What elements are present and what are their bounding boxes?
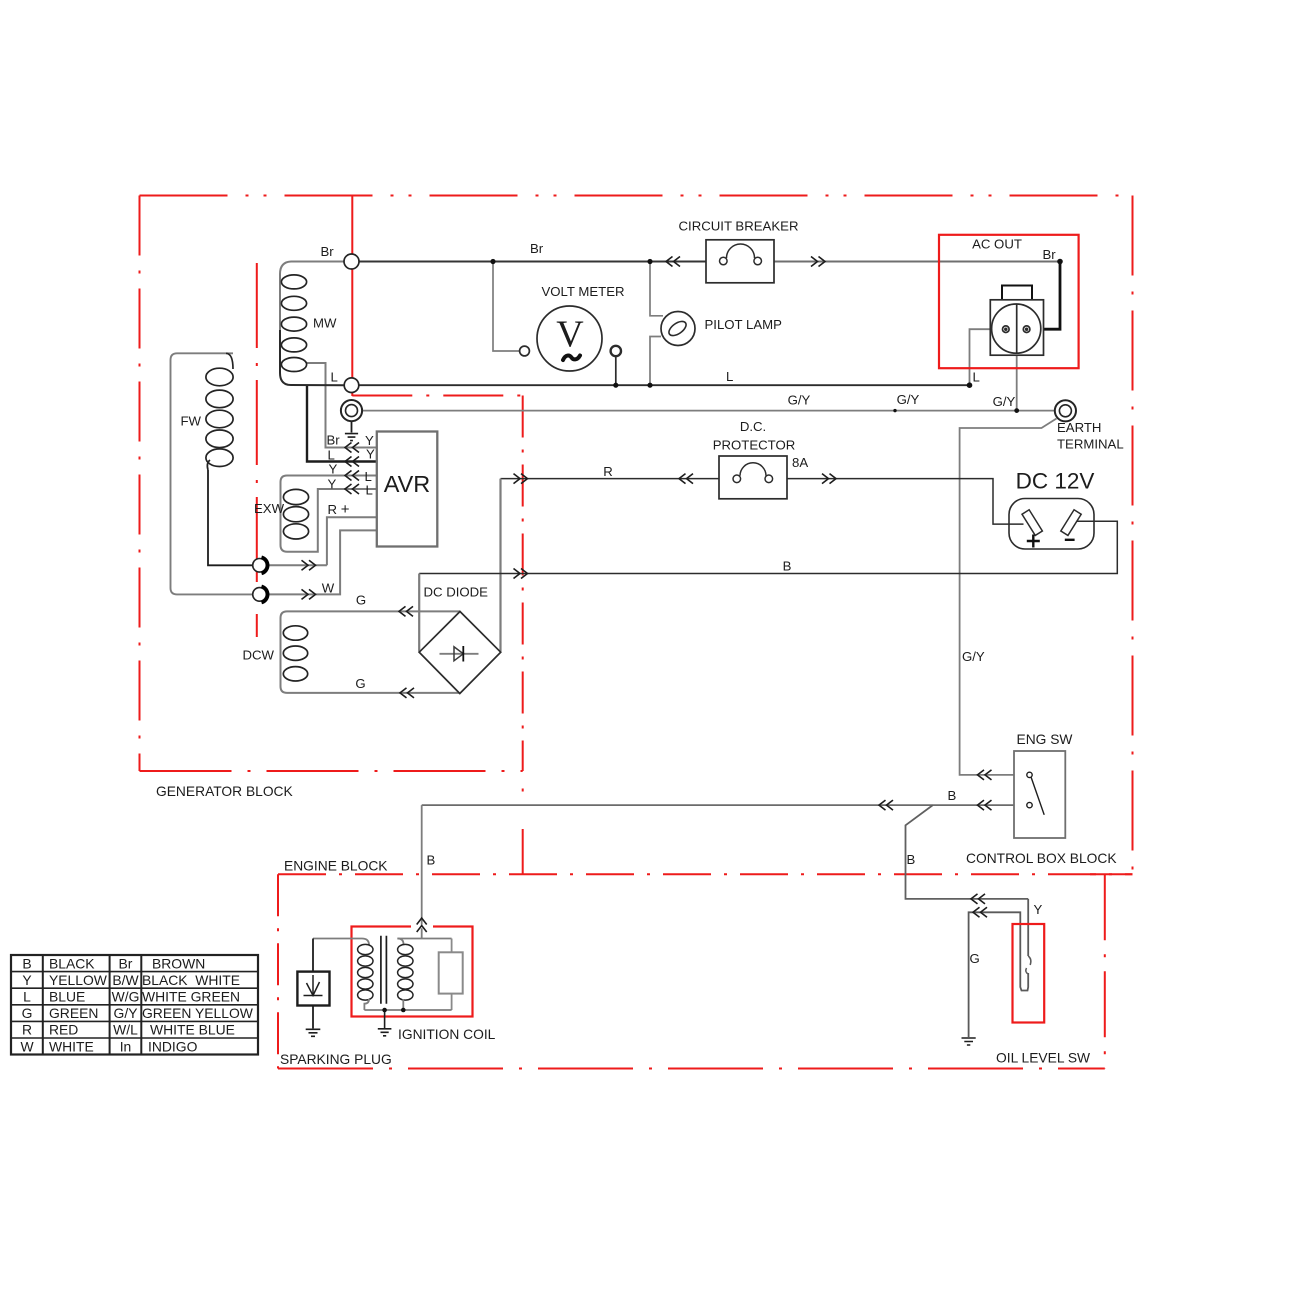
svg-text:GREEN YELLOW: GREEN YELLOW bbox=[142, 1005, 254, 1021]
svg-text:GENERATOR BLOCK: GENERATOR BLOCK bbox=[156, 784, 294, 799]
svg-text:Y: Y bbox=[328, 477, 337, 492]
svg-text:FW: FW bbox=[181, 414, 202, 429]
svg-text:VOLT METER: VOLT METER bbox=[541, 284, 624, 299]
svg-text:ENGINE BLOCK: ENGINE BLOCK bbox=[284, 859, 388, 874]
svg-text:Br: Br bbox=[327, 433, 341, 448]
svg-text:G: G bbox=[970, 951, 980, 966]
svg-text:B/W: B/W bbox=[112, 972, 139, 988]
svg-text:PILOT LAMP: PILOT LAMP bbox=[705, 317, 783, 332]
svg-text:TERMINAL: TERMINAL bbox=[1057, 437, 1124, 452]
svg-text:W: W bbox=[20, 1038, 34, 1054]
svg-text:L: L bbox=[328, 448, 335, 463]
svg-text:G/Y: G/Y bbox=[897, 392, 920, 407]
svg-text:G/Y: G/Y bbox=[962, 649, 985, 664]
svg-text:R: R bbox=[22, 1022, 32, 1038]
svg-text:In: In bbox=[120, 1038, 132, 1054]
svg-text:AVR: AVR bbox=[384, 471, 431, 497]
svg-text:B: B bbox=[907, 852, 916, 867]
svg-text:V: V bbox=[556, 314, 584, 356]
svg-text:GREEN: GREEN bbox=[49, 1005, 98, 1021]
svg-text:RED: RED bbox=[49, 1022, 78, 1038]
svg-text:G/Y: G/Y bbox=[993, 394, 1016, 409]
svg-text:EARTH: EARTH bbox=[1057, 420, 1101, 435]
svg-text:DC 12V: DC 12V bbox=[1016, 469, 1095, 494]
svg-text:G/Y: G/Y bbox=[114, 1005, 138, 1021]
svg-text:EXW: EXW bbox=[254, 501, 285, 516]
svg-text:L: L bbox=[331, 370, 338, 385]
svg-text:ENG SW: ENG SW bbox=[1017, 732, 1073, 747]
svg-text:Br: Br bbox=[119, 955, 133, 971]
svg-text:BLACK WHITE: BLACK WHITE bbox=[142, 972, 240, 988]
svg-text:BLUE: BLUE bbox=[49, 989, 85, 1005]
svg-text:G: G bbox=[355, 676, 365, 691]
svg-text:L: L bbox=[366, 483, 373, 498]
svg-text:Y: Y bbox=[329, 462, 338, 477]
svg-text:SPARKING PLUG: SPARKING PLUG bbox=[280, 1052, 392, 1067]
svg-text:L: L bbox=[973, 370, 980, 385]
svg-text:BROWN: BROWN bbox=[152, 955, 205, 971]
svg-text:MW: MW bbox=[313, 316, 337, 331]
svg-text:W/L: W/L bbox=[113, 1022, 138, 1038]
svg-text:B: B bbox=[22, 955, 31, 971]
svg-text:G: G bbox=[22, 1005, 33, 1021]
svg-text:Br: Br bbox=[321, 244, 335, 259]
svg-text:B: B bbox=[783, 559, 792, 574]
svg-text:INDIGO: INDIGO bbox=[148, 1038, 198, 1054]
svg-text:L: L bbox=[726, 369, 733, 384]
svg-text:B: B bbox=[948, 788, 957, 803]
svg-text:DC DIODE: DC DIODE bbox=[424, 585, 489, 600]
svg-text:W: W bbox=[322, 581, 335, 596]
svg-text:CIRCUIT BREAKER: CIRCUIT BREAKER bbox=[679, 219, 799, 234]
svg-text:WHITE GREEN: WHITE GREEN bbox=[142, 989, 240, 1005]
svg-text:8A: 8A bbox=[792, 455, 808, 470]
svg-text:IGNITION COIL: IGNITION COIL bbox=[398, 1027, 496, 1042]
svg-text:R +: R + bbox=[328, 501, 350, 518]
svg-text:BLACK: BLACK bbox=[49, 955, 95, 971]
svg-text:AC OUT: AC OUT bbox=[972, 237, 1022, 252]
svg-text:L: L bbox=[23, 989, 31, 1005]
svg-text:Br: Br bbox=[530, 241, 544, 256]
svg-text:Y: Y bbox=[366, 447, 375, 462]
svg-text:Y: Y bbox=[1034, 902, 1043, 917]
svg-text:WHITE: WHITE bbox=[49, 1038, 94, 1054]
svg-text:CONTROL BOX BLOCK: CONTROL BOX BLOCK bbox=[966, 851, 1117, 866]
svg-text:R: R bbox=[603, 464, 613, 479]
svg-text:W/G: W/G bbox=[112, 989, 140, 1005]
svg-text:PROTECTOR: PROTECTOR bbox=[713, 438, 796, 453]
svg-text:DCW: DCW bbox=[243, 648, 275, 663]
svg-text:OIL LEVEL SW: OIL LEVEL SW bbox=[996, 1051, 1090, 1066]
svg-text:B: B bbox=[427, 853, 436, 868]
svg-text:G: G bbox=[356, 593, 366, 608]
svg-text:Br: Br bbox=[1043, 247, 1057, 262]
svg-text:YELLOW: YELLOW bbox=[49, 972, 108, 988]
svg-text:WHITE BLUE: WHITE BLUE bbox=[150, 1022, 235, 1038]
svg-text:G/Y: G/Y bbox=[788, 393, 811, 408]
svg-text:D.C.: D.C. bbox=[740, 419, 766, 434]
svg-text:Y: Y bbox=[22, 972, 31, 988]
